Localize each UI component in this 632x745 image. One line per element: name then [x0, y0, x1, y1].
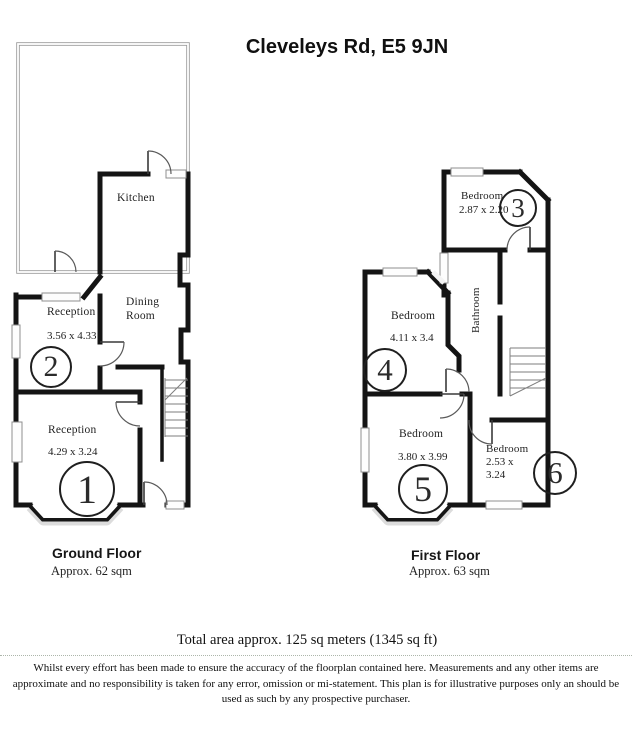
zone-circle-5: 5: [398, 464, 448, 514]
bedroom3-window: [451, 168, 483, 176]
front-door-arc: [144, 482, 167, 505]
room-label-reception1: Reception: [48, 424, 96, 436]
reception2-side-window: [12, 325, 20, 358]
ground-floor-plan: [12, 44, 188, 521]
kitchen-window: [166, 170, 186, 178]
room-label-dining: Dining Room: [126, 295, 178, 324]
first-floor-doors: [440, 227, 530, 444]
page-title: Cleveleys Rd, E5 9JN: [62, 36, 632, 59]
first-floor-stairs: [510, 348, 546, 396]
garden-outline: [18, 44, 188, 272]
reception2-door-arc: [100, 342, 124, 366]
room-label-bedroom6: Bedroom: [486, 443, 528, 455]
zone-circle-3: 3: [499, 189, 537, 227]
bedroom6-window: [486, 501, 522, 509]
dotted-divider: [0, 655, 632, 656]
zone-circle-6: 6: [533, 451, 577, 495]
reception2-rear-window: [42, 293, 80, 301]
room-label-bedroom3: Bedroom: [461, 190, 503, 202]
total-area-text: Total area approx. 125 sq meters (1345 s…: [0, 632, 614, 649]
bedroom4-window: [383, 268, 417, 276]
ground-floor-area: Approx. 62 sqm: [51, 564, 132, 579]
hall-front-window: [166, 501, 184, 509]
stair-treads-first: [510, 348, 546, 388]
ground-floor-stairs: [165, 378, 188, 437]
zone-circle-1: 1: [59, 461, 115, 517]
garden-wall: [18, 44, 188, 272]
room-label-bedroom4: Bedroom: [391, 310, 435, 322]
ground-floor-walls: [16, 174, 188, 505]
first-floor-name: First Floor: [411, 547, 480, 563]
reception1-side-window: [12, 422, 22, 462]
first-floor-area: Approx. 63 sqm: [409, 564, 490, 579]
room-dims-reception2: 3.56 x 4.33: [47, 330, 97, 342]
bedroom5-side-window: [361, 428, 369, 472]
room-label-kitchen: Kitchen: [117, 192, 155, 204]
bathroom-left-wall: [448, 293, 459, 370]
room-dims-reception1: 4.29 x 3.24: [48, 446, 98, 458]
room-dims-bedroom5: 3.80 x 3.99: [398, 451, 448, 463]
reception1-door-arc: [116, 402, 140, 426]
bedroom3-door-arc: [507, 227, 530, 250]
right-exterior-wall: [180, 174, 188, 505]
zone-circle-2: 2: [30, 346, 72, 388]
garden-wall-inner: [18, 44, 188, 272]
room-label-reception2: Reception: [47, 306, 95, 318]
garden-door-arc: [55, 251, 76, 272]
room-dims-bedroom4: 4.11 x 3.4: [390, 332, 434, 344]
floorplan-page: { "title": "Cleveleys Rd, E5 9JN", "floo…: [0, 0, 632, 745]
bedroom5-door-arc: [440, 394, 464, 418]
zone-circle-4: 4: [363, 348, 407, 392]
disclaimer-text: Whilst every effort has been made to ens…: [6, 661, 626, 708]
ground-floor-name: Ground Floor: [52, 545, 141, 561]
bathroom-door-arc: [446, 369, 469, 392]
room-label-bedroom5: Bedroom: [399, 428, 443, 440]
room-dims-bedroom6: 2.53 x 3.24: [486, 456, 532, 481]
room-label-bathroom: Bathroom: [470, 287, 482, 333]
